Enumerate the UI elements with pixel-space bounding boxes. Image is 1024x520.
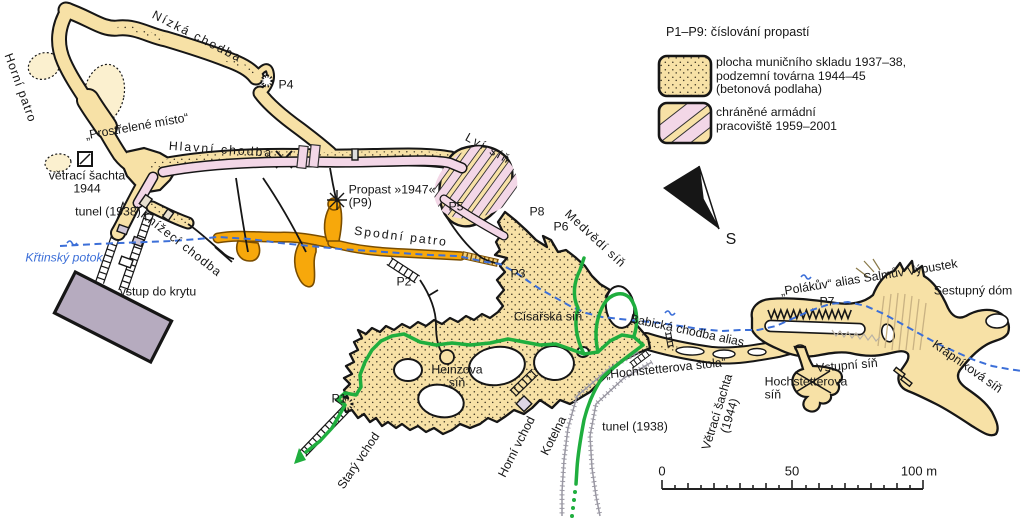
tour-route-dots [570, 490, 577, 518]
label-krtinsky-potok: Křtinský potok [25, 251, 102, 264]
label-vetraci-sachta-west: větrací šachta1944 [49, 170, 126, 197]
label-propast-1947: Propast »1947«(P9) [349, 184, 436, 211]
p4-pit-symbol [262, 76, 272, 86]
label-p2: P2 [396, 275, 411, 288]
cave-map-canvas: Nízká chodba Horní patro P4 „Prostřelené… [0, 0, 1024, 520]
legend-item-munition-text: plocha muničního skladu 1937–38, podzemn… [716, 56, 906, 97]
label-sestupny-dom: Sestupný dóm [934, 284, 1013, 297]
scale-label-100m: 100 m [901, 464, 937, 479]
label-p1: P1 [331, 392, 346, 405]
legend-swatch-munition [656, 53, 716, 101]
compass-south-label: S [726, 231, 737, 249]
label-vstup-do-krytu: vstup do krytu [120, 285, 197, 298]
label-p7: P7 [819, 295, 834, 308]
label-p6: P6 [553, 220, 568, 233]
label-hochstetterova-sin: Hochstetterovasíň [765, 376, 848, 403]
label-p3: P3 [510, 267, 525, 280]
legend-swatch-army [656, 100, 716, 148]
scale-label-0: 0 [658, 464, 665, 479]
label-heinzova-sin: Heinzovasíň [431, 364, 482, 391]
label-p5: P5 [448, 200, 463, 213]
tour-route-arrowhead [294, 448, 306, 464]
label-p8: P8 [529, 205, 544, 218]
label-cisarska-sin: Císařská síň [514, 310, 582, 323]
label-p4: P4 [278, 78, 293, 91]
scale-bar [662, 480, 923, 489]
p9-pit-symbol [327, 190, 347, 210]
scale-label-50: 50 [785, 464, 799, 479]
legend-title: P1–P9: číslování propastí [666, 25, 810, 39]
legend-item-army-text: chráněné armádní pracoviště 1959–2001 [716, 106, 837, 133]
north-arrow [663, 166, 719, 229]
label-tunel-east: tunel (1938) [602, 420, 668, 433]
label-tunel-west: tunel (1938) [75, 205, 141, 218]
